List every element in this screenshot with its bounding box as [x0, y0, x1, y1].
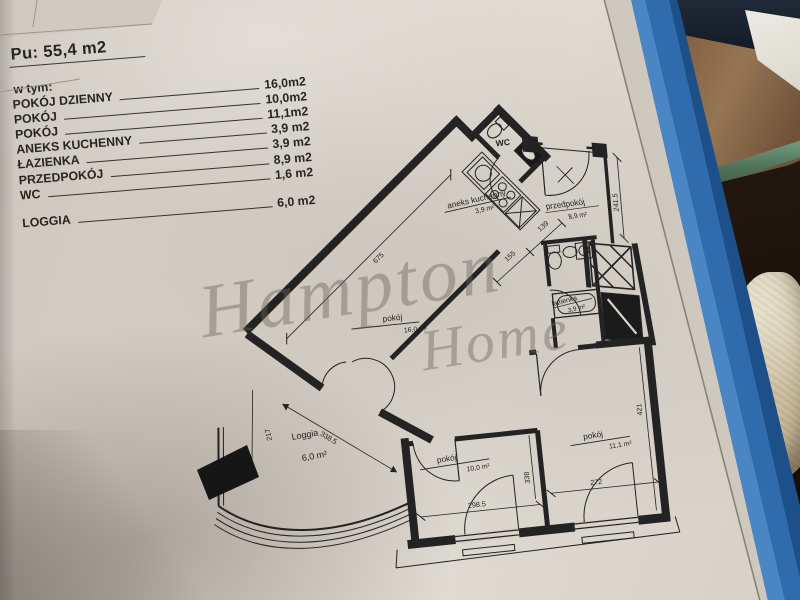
photo-of-floorplan-document: Pu: 55,4 m2 w tym: POKÓJ DZIENNY16,0m2 P… [0, 0, 800, 600]
binder-highlight [630, 0, 786, 600]
binder-edge-layer [0, 0, 800, 600]
